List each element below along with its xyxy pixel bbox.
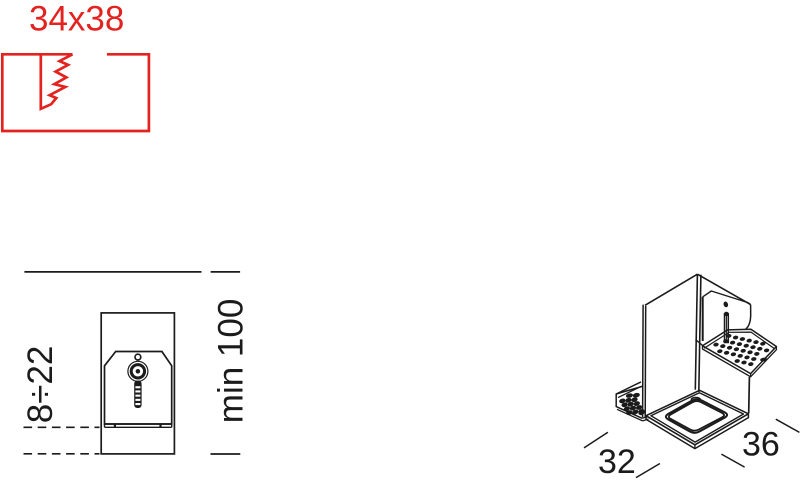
svg-text:min 100: min 100	[211, 299, 250, 424]
svg-text:8÷22: 8÷22	[21, 346, 60, 424]
svg-text:34x38: 34x38	[29, 0, 124, 38]
svg-text:32: 32	[598, 443, 636, 479]
svg-text:36: 36	[742, 425, 780, 463]
